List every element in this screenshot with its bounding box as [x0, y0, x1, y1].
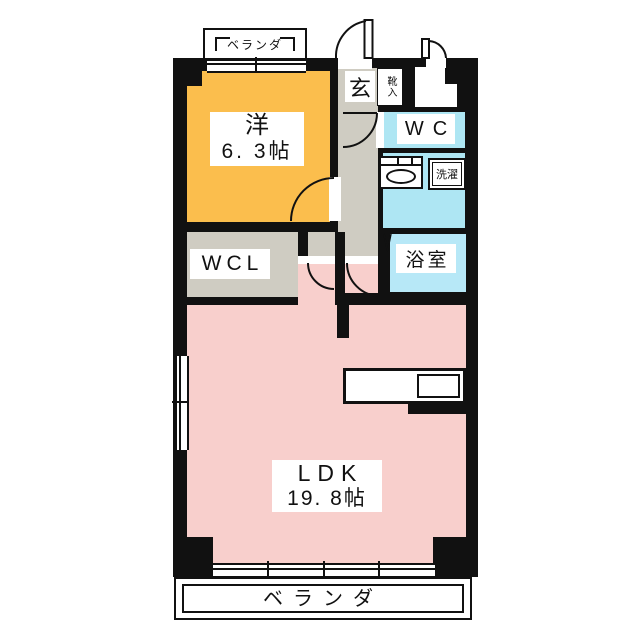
room-ldk: [187, 305, 466, 565]
storage-door-opening: [426, 57, 446, 68]
room-ldk-doorway-area-left: [298, 263, 335, 305]
window-ldk-left: [175, 356, 189, 450]
floorplan-canvas: ベランダ ベランダ 洗濯: [0, 0, 640, 640]
entrance-door-leaf: [365, 20, 373, 58]
window-glass-line: [179, 356, 181, 450]
ldk-label: LDK 19. 8帖: [272, 460, 382, 512]
veranda-top: ベランダ: [203, 28, 307, 61]
wcl-label: WCL: [190, 249, 270, 279]
room-ldk-doorway-area-right: [345, 263, 378, 293]
washbasin: [379, 156, 423, 189]
washing-machine-pan: 洗濯: [428, 158, 466, 190]
window-ldk-veranda: [213, 563, 435, 578]
wc-door-opening: [376, 112, 384, 148]
western-room-door-opening: [329, 177, 341, 221]
shoe-storage: 靴入: [377, 68, 403, 106]
ldk-name: LDK: [291, 460, 364, 486]
entrance-label: 玄: [345, 71, 375, 102]
kitchen-wall-stub: [337, 305, 349, 338]
corner-pillar-top-left: [187, 71, 202, 86]
kitchen-sink: [417, 374, 460, 398]
western-room-name: 洋: [245, 113, 269, 139]
ldk-door-opening-left: [298, 256, 335, 264]
wc-label: WC: [397, 114, 455, 144]
kitchen-partition-wall: [335, 293, 466, 305]
washbasin-counter-line: [381, 164, 421, 166]
ldk-size: 19. 8帖: [287, 486, 367, 512]
shoe-storage-label: 靴入: [385, 76, 395, 98]
corner-pillar-bottom-left: [173, 537, 213, 577]
entrance-door-opening: [338, 57, 372, 69]
storage-door-arc: [429, 41, 446, 58]
window-glass-line: [213, 568, 435, 570]
corridor-nook-left: [308, 232, 335, 257]
bathroom-label: 浴室: [396, 244, 456, 273]
corner-pillar-bottom-right: [433, 537, 478, 577]
veranda-bottom: ベランダ: [174, 577, 472, 620]
corner-pillar-top-right: [445, 67, 457, 84]
storage-door-leaf: [422, 39, 429, 58]
window-glass-line: [207, 63, 306, 65]
veranda-corner-bracket-right: [280, 37, 295, 51]
counter-back-wall: [408, 404, 466, 414]
ldk-door-opening-right: [345, 256, 378, 264]
corridor-nook-right: [345, 232, 378, 257]
window-western-room: [207, 59, 306, 73]
washbasin-bowl: [386, 169, 416, 184]
washing-machine-label: 洗濯: [432, 162, 462, 186]
kitchen-counter: [343, 368, 466, 404]
western-room-label: 洋 6. 3帖: [210, 112, 304, 166]
entrance-door-arc: [336, 21, 366, 58]
washbasin-divider: [397, 158, 399, 164]
washbasin-divider: [411, 158, 413, 164]
veranda-bottom-label: ベランダ: [176, 582, 470, 611]
western-room-size: 6. 3帖: [221, 139, 292, 165]
